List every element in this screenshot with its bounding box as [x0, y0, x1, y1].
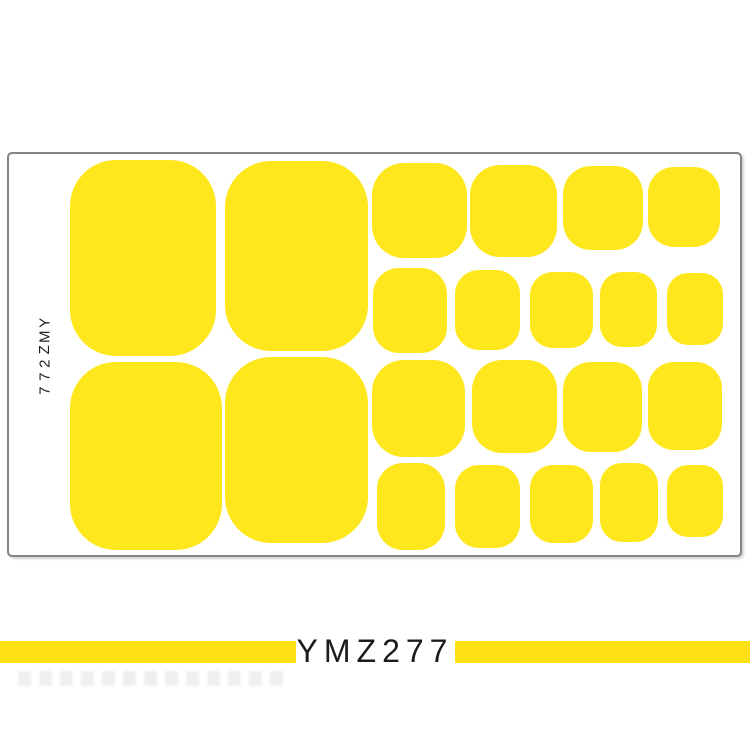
sheet-code-char: Y [38, 318, 52, 328]
nail-sticker-medium-7 [563, 362, 642, 452]
nail-sticker-small-3 [530, 272, 593, 348]
sheet-code-char: Z [38, 345, 52, 354]
nail-sticker-small-6 [377, 463, 445, 550]
nail-sticker-big-2 [225, 161, 368, 351]
nail-sticker-medium-4 [648, 167, 720, 247]
nail-sticker-medium-8 [648, 362, 722, 450]
nail-sticker-small-5 [667, 273, 723, 345]
sheet-code-char: 7 [38, 386, 52, 394]
faint-watermark [18, 671, 290, 686]
nail-sticker-medium-6 [472, 360, 557, 453]
sheet-code-char: 2 [38, 359, 52, 367]
nail-sticker-medium-2 [470, 165, 557, 257]
banner-bar-right [455, 641, 750, 663]
nail-sticker-small-1 [373, 268, 447, 353]
nail-sticker-medium-3 [563, 166, 643, 250]
nail-sticker-big-1 [70, 160, 216, 356]
sheet-code-vertical-label: YMZ277 [31, 316, 59, 397]
nail-sticker-small-7 [455, 465, 520, 548]
nail-sticker-small-4 [600, 272, 657, 347]
nail-sticker-big-4 [225, 357, 368, 543]
nail-sticker-medium-1 [372, 163, 467, 258]
nail-sticker-small-10 [667, 465, 723, 537]
nail-sticker-small-2 [455, 270, 520, 350]
nail-sticker-big-3 [70, 362, 222, 550]
product-image: YMZ277 YMZ277 [0, 0, 750, 750]
sheet-code-char: 7 [38, 373, 52, 381]
sheet-code-char: M [38, 330, 52, 343]
nail-sticker-medium-5 [372, 360, 465, 457]
nail-sticker-small-9 [600, 463, 658, 542]
nail-sticker-small-8 [530, 465, 593, 543]
